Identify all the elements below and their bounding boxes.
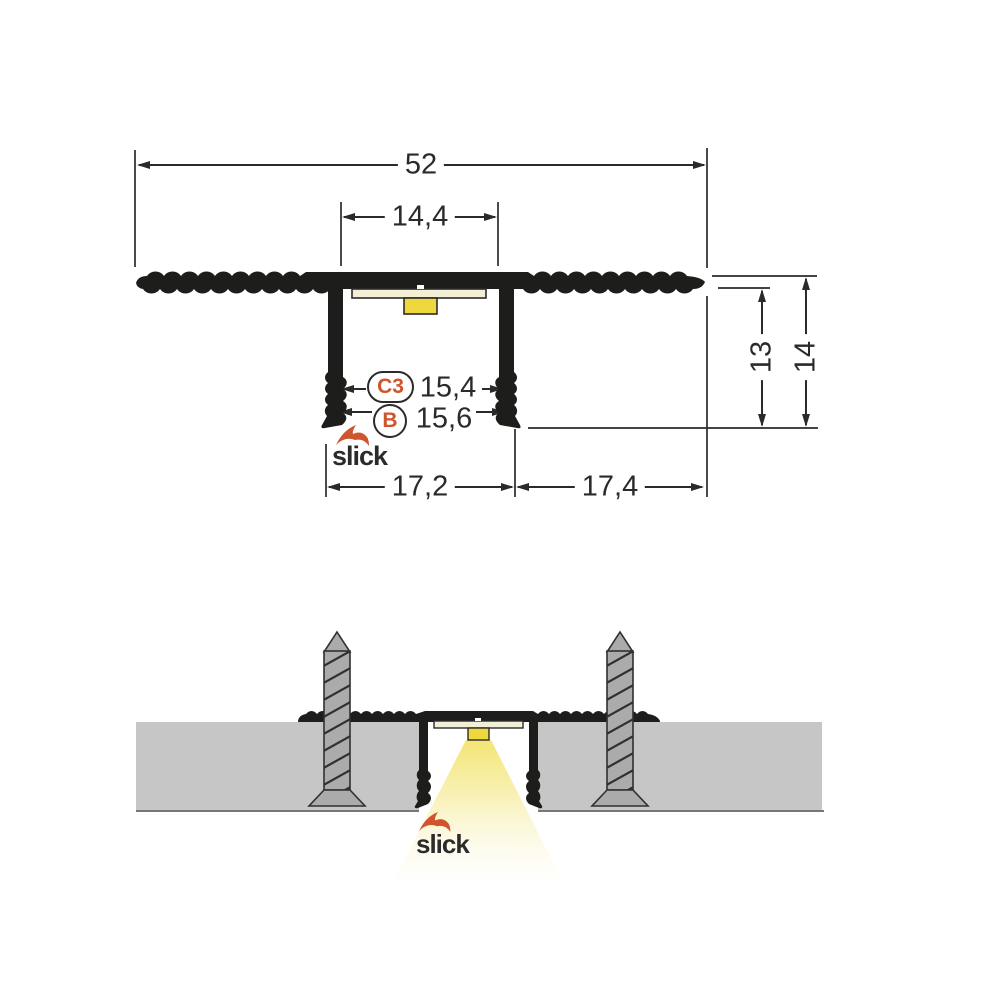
led-chip [404,298,437,314]
dim-channel-width: 14,4 [385,203,455,232]
installed-led-pcb [434,721,523,728]
dim-inner-depth: 13 [748,334,777,380]
dim-left-segment: 17,2 [385,473,455,502]
profile-left-leg [321,285,346,428]
technical-drawing-page: 52 14,4 C3 15,4 B 15,6 17,2 17,4 13 14 s… [0,0,992,992]
marker-b-label: B [382,409,397,433]
dim-right-segment: 17,4 [575,473,645,502]
marker-c3-label: C3 [377,375,404,399]
installation-view [136,632,824,888]
installed-pcb-notch [475,718,481,721]
drawing-graphics [0,0,992,992]
dim-b-width: 15,6 [416,405,472,434]
slick-logo-bottom: slick [416,829,469,860]
marker-badge-b: B [373,404,407,438]
profile-right-leg [495,285,520,428]
pcb-center-notch [417,285,424,289]
screw-tip [324,632,350,652]
extension-lines [135,148,818,497]
dimension-arrowheads [137,161,810,491]
dim-overall-height: 14 [792,334,821,380]
dim-overall-width: 52 [398,151,444,180]
screw-tip [607,632,633,652]
slick-logo-top: slick [332,441,387,472]
dim-c3-width: 15,4 [420,374,476,403]
dimension-lines [139,165,806,487]
led-pcb-strip [352,289,486,298]
installed-led-chip [468,728,489,740]
marker-badge-c3: C3 [367,371,414,403]
